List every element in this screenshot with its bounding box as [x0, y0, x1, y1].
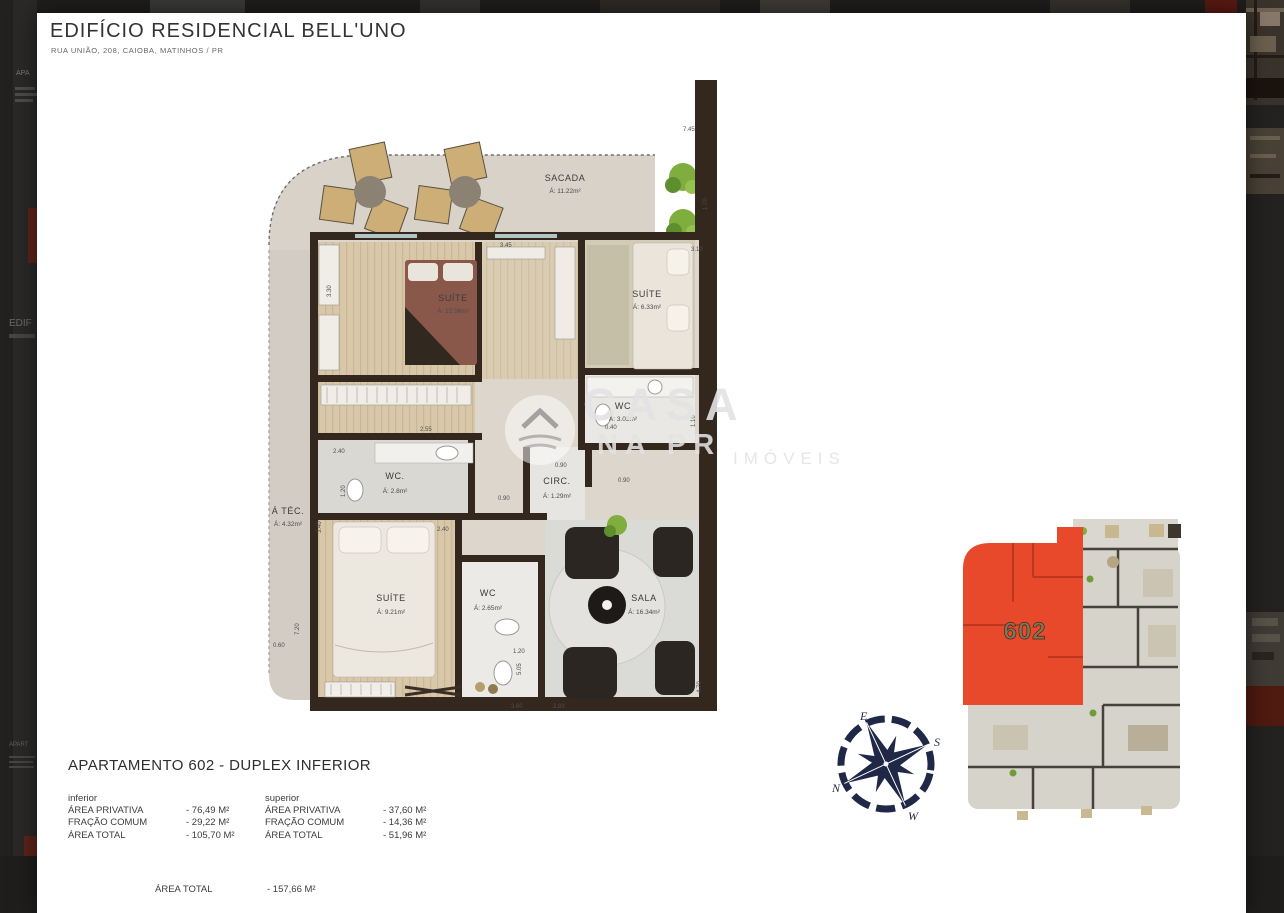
left-edge-bar: [9, 766, 34, 768]
top-edge-fragment: [420, 0, 480, 13]
svg-text:0.90: 0.90: [498, 496, 510, 502]
svg-text:2.40: 2.40: [437, 527, 449, 533]
area-row: ÁREA PRIVATIVA - 76,49 M²: [68, 805, 278, 817]
area-row: ÁREA TOTAL - 105,70 M²: [68, 830, 278, 842]
compass-west: W: [908, 809, 919, 823]
svg-text:2.40: 2.40: [333, 449, 345, 455]
room-label-suite1: SUÍTE: [438, 293, 468, 303]
left-edge-bar: [15, 93, 37, 96]
room-label-suite2: SUÍTE: [632, 289, 662, 299]
areas-inferior: inferior ÁREA PRIVATIVA - 76,49 M² FRAÇÃ…: [68, 793, 278, 842]
column-heading: inferior: [68, 793, 278, 805]
room-area-wc1: Á: 3.03m²: [609, 414, 638, 423]
room-area-suite1: Á: 12.56m²: [437, 306, 470, 315]
right-edge-plan-fragment: [1246, 0, 1284, 105]
svg-text:1.20: 1.20: [513, 649, 525, 655]
room-area-sacada: Á: 11.22m²: [549, 186, 581, 195]
svg-text:3.10: 3.10: [691, 247, 703, 253]
svg-text:7.45: 7.45: [683, 127, 695, 133]
room-label-wc1: WC: [615, 401, 631, 411]
top-edge-fragment: [1050, 0, 1130, 13]
room-label-sacada: SACADA: [545, 173, 586, 183]
room-label-atec: Á TÉC.: [272, 506, 304, 516]
room-area-circ: Á: 1.29m²: [543, 491, 572, 500]
compass-east: E: [859, 709, 868, 723]
svg-text:3.30: 3.30: [327, 285, 333, 297]
top-edge-fragment: [1205, 0, 1237, 13]
plant-icon: [665, 163, 700, 239]
right-edge-next-slide[interactable]: [1246, 0, 1284, 856]
watermark-text-3: IMÓVEIS: [733, 449, 846, 469]
left-edge-shadow: [0, 0, 13, 856]
svg-text:5.05: 5.05: [517, 663, 523, 675]
floor-plan: SACADA Á: 11.22m² SUÍTE Á: 12.56m² SUÍTE…: [255, 75, 718, 728]
area-row: FRAÇÃO COMUM - 29,22 M²: [68, 817, 278, 829]
svg-text:1.10: 1.10: [691, 415, 697, 427]
left-edge-bar: [9, 756, 35, 758]
viewer-backdrop: { "header": { "title": "EDIFÍCIO RESIDEN…: [0, 0, 1284, 856]
column-heading: superior: [265, 793, 475, 805]
svg-text:2.83: 2.83: [553, 704, 565, 710]
top-edge-fragment: [600, 0, 720, 13]
main-image-card: EDIFÍCIO RESIDENCIAL BELL'UNO RUA UNIÃO,…: [37, 13, 1246, 913]
room-label-sala: SALA: [631, 593, 656, 603]
left-edge-previous-slide[interactable]: APA EDIF APART: [0, 0, 37, 856]
svg-text:3.40: 3.40: [317, 521, 323, 533]
compass-south: S: [934, 735, 940, 749]
left-edge-text-fragment: APA: [16, 70, 30, 77]
apartment-title: APARTAMENTO 602 - DUPLEX INFERIOR: [68, 757, 588, 774]
right-edge-plan-fragment: [1246, 128, 1284, 194]
compass-rose: E S N W: [824, 690, 949, 835]
svg-text:1.70: 1.70: [703, 198, 709, 210]
key-plan-unit-602: [963, 527, 1083, 705]
left-edge-bar: [9, 334, 35, 338]
room-label-circ: CIRC.: [543, 476, 571, 486]
svg-text:4.70: 4.70: [697, 681, 703, 693]
svg-text:0.90: 0.90: [618, 478, 630, 484]
left-edge-bar: [15, 87, 35, 90]
key-plan-unit-number: 602: [1003, 618, 1046, 645]
svg-text:2.55: 2.55: [420, 427, 432, 433]
room-area-suite2: Á: 6.33m²: [633, 302, 662, 311]
room-area-wc3: Á: 2.65m²: [474, 603, 503, 612]
key-plan: 602: [953, 517, 1195, 832]
svg-text:0.60: 0.60: [273, 643, 285, 649]
room-area-wc2: Á: 2.8m²: [383, 486, 408, 495]
apartment-details: APARTAMENTO 602 - DUPLEX INFERIOR inferi…: [68, 757, 588, 774]
top-edge-fragment: [150, 0, 245, 13]
left-edge-bar: [9, 761, 33, 763]
left-edge-red-fragment: [28, 208, 37, 263]
right-edge-red-fragment: [1246, 686, 1284, 726]
svg-text:0.40: 0.40: [605, 425, 617, 431]
room-label-suite3: SUÍTE: [376, 593, 406, 603]
left-edge-text-fragment: APART: [9, 742, 28, 748]
page-title: EDIFÍCIO RESIDENCIAL BELL'UNO: [50, 20, 407, 43]
room-area-atec: Á: 4.32m²: [274, 519, 303, 528]
area-total-row: ÁREA TOTAL - 157,66 M²: [155, 884, 316, 896]
svg-text:7.20: 7.20: [295, 623, 301, 635]
svg-text:1.20: 1.20: [341, 485, 347, 497]
room-area-sala: Á: 16.34m²: [628, 607, 661, 616]
svg-text:0.90: 0.90: [555, 463, 567, 469]
area-row: FRAÇÃO COMUM - 14,36 M²: [265, 817, 475, 829]
top-edge-fragment: [760, 0, 830, 13]
svg-text:3.45: 3.45: [500, 243, 512, 249]
room-label-wc2: WC.: [385, 471, 404, 481]
left-edge-text-fragment: EDIF: [9, 318, 32, 329]
room-label-wc3: WC: [480, 588, 496, 598]
compass-north: N: [831, 781, 841, 795]
left-edge-bar: [15, 99, 33, 102]
area-row: ÁREA PRIVATIVA - 37,60 M²: [265, 805, 475, 817]
area-row: ÁREA TOTAL - 51,96 M²: [265, 830, 475, 842]
svg-text:3.60: 3.60: [511, 704, 523, 710]
areas-superior: superior ÁREA PRIVATIVA - 37,60 M² FRAÇÃ…: [265, 793, 475, 842]
page-address: RUA UNIÃO, 208, CAIOBA, MATINHOS / PR: [51, 46, 224, 55]
room-area-suite3: Á: 9.21m²: [377, 607, 406, 616]
right-edge-plan-fragment: [1246, 612, 1284, 686]
left-edge-red-fragment: [24, 836, 37, 856]
